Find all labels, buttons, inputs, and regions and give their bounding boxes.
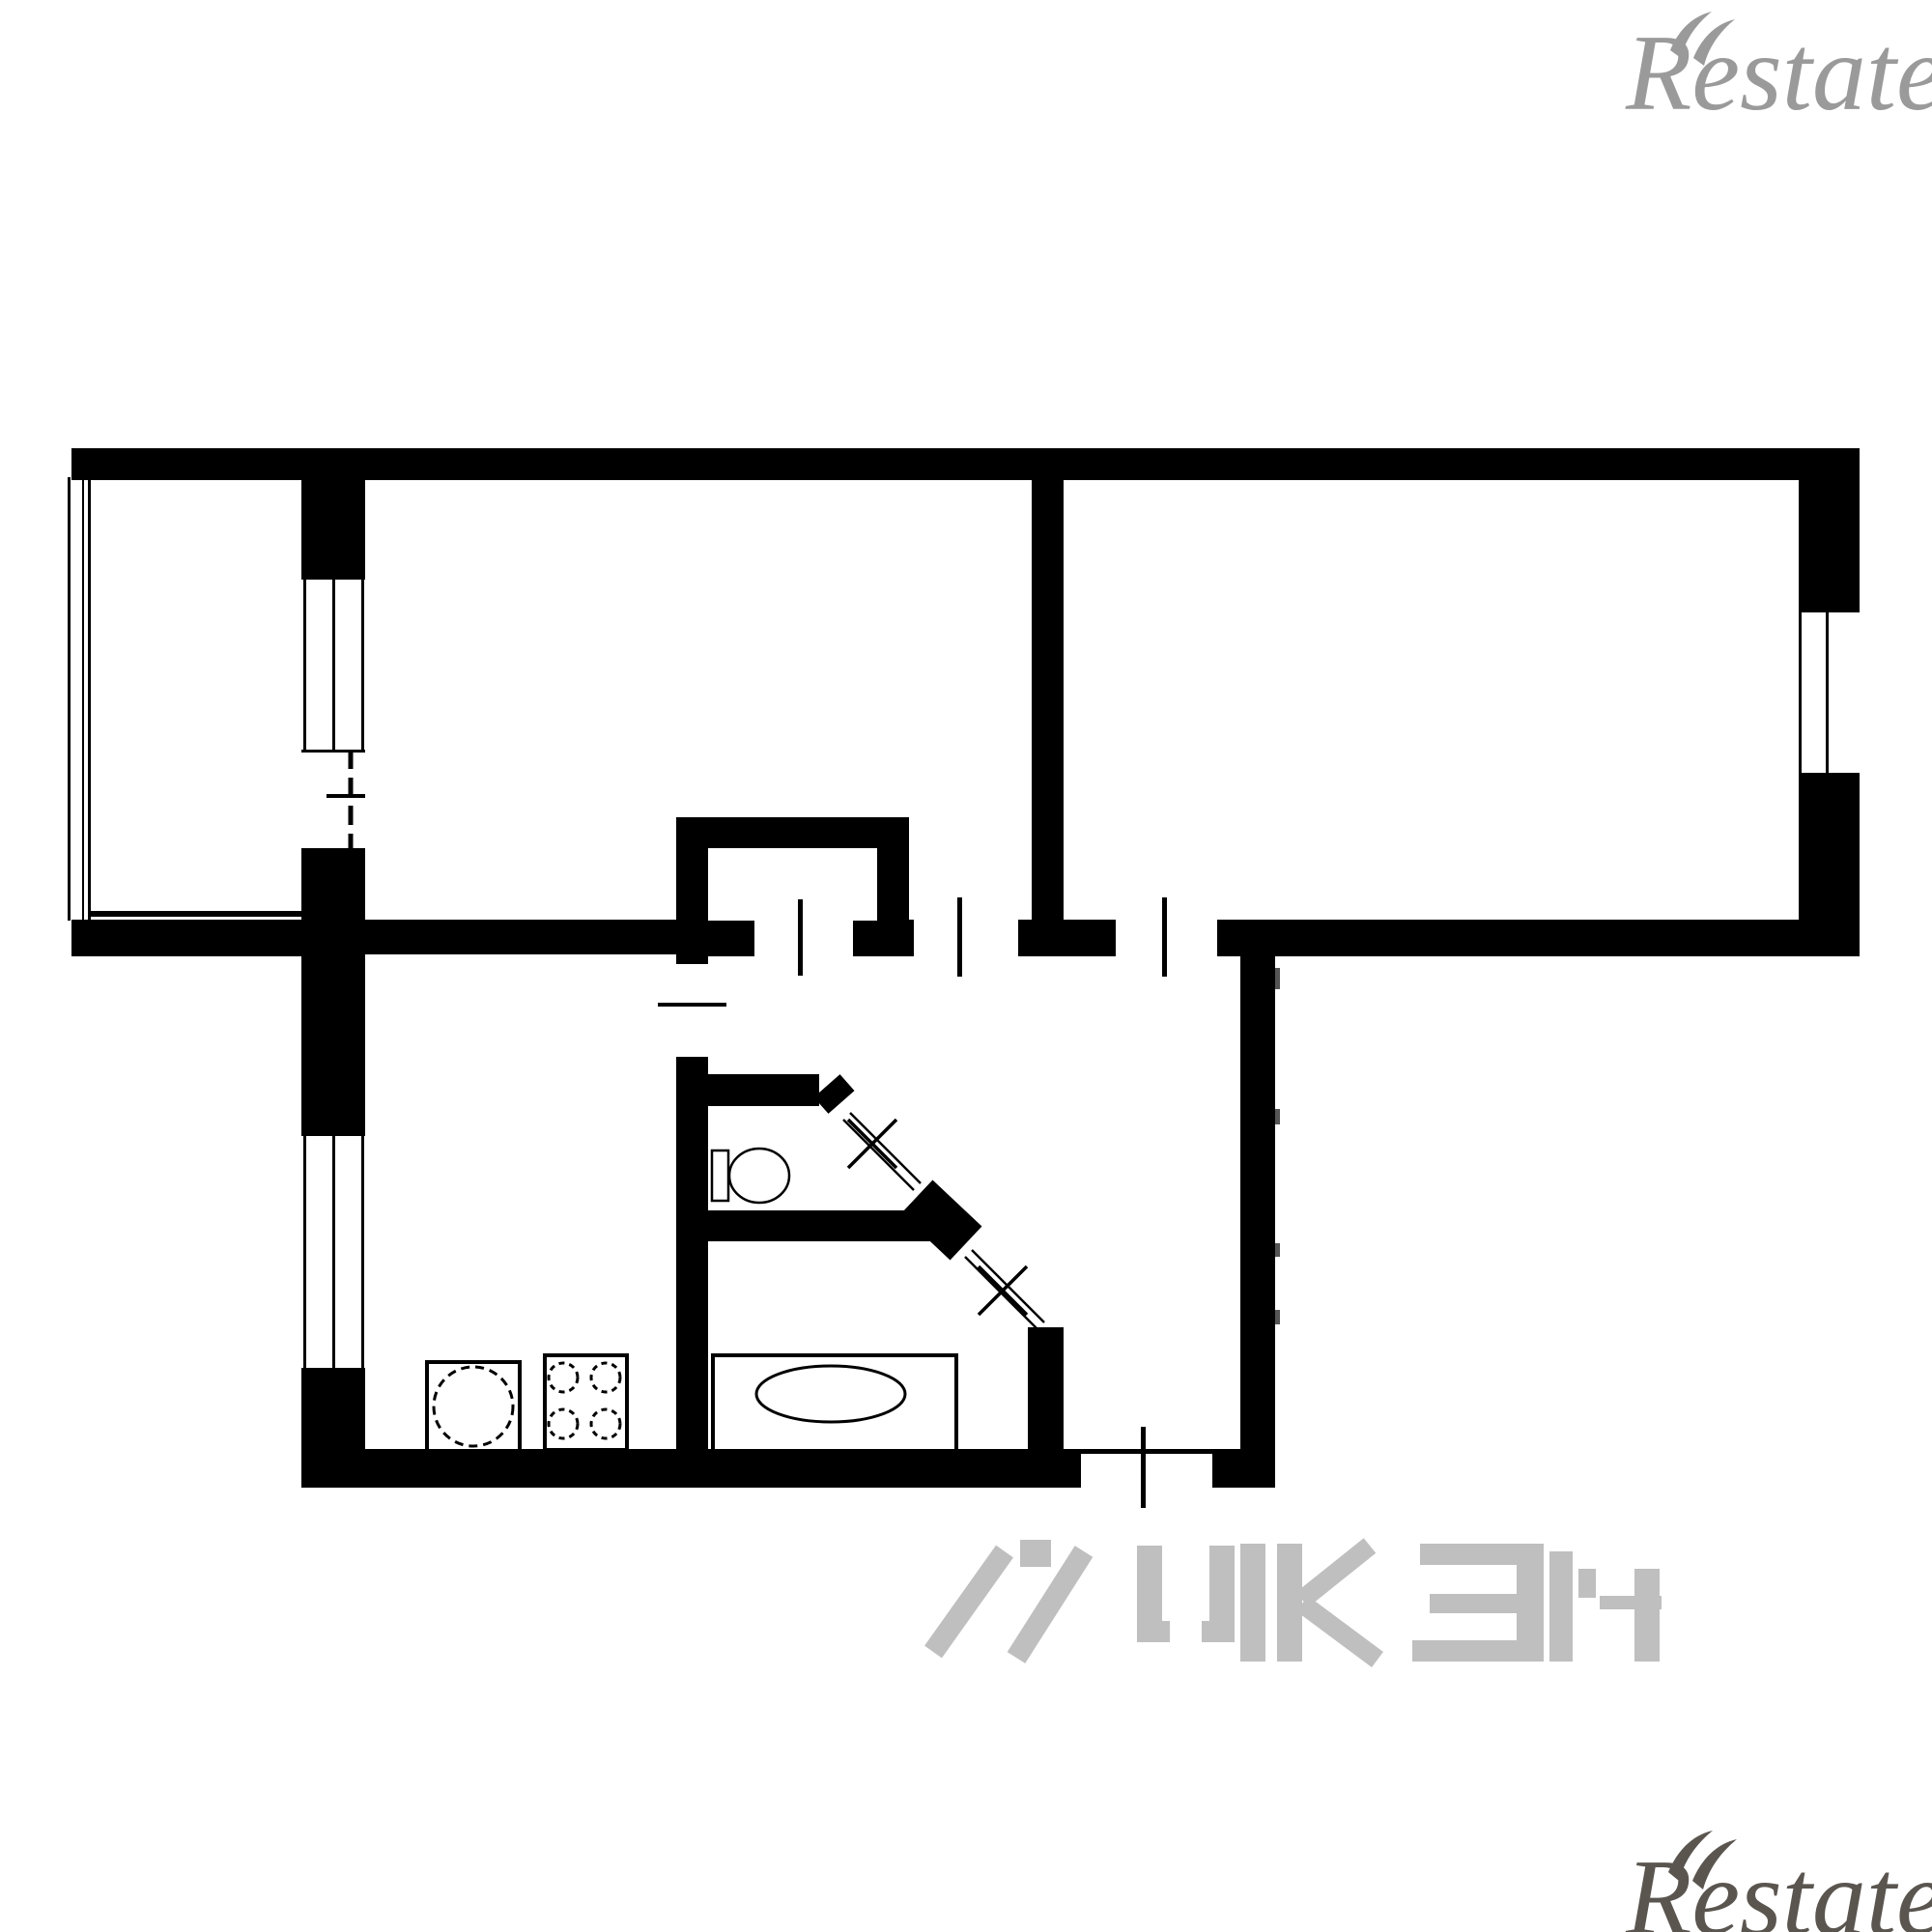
svg-text:Restate: Restate [1625,1838,1932,1932]
svg-text:Restate: Restate [1625,14,1932,133]
